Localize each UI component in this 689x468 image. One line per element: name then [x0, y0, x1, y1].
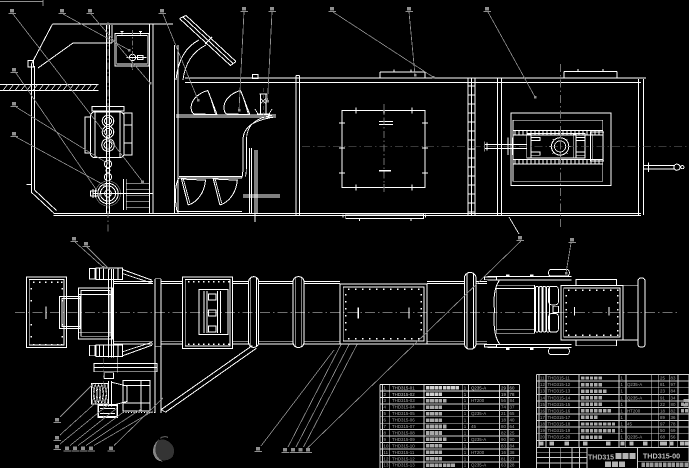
svg-text:THD315-14: THD315-14 [548, 395, 571, 400]
svg-text:78: 78 [510, 392, 515, 397]
svg-text:THD315-12: THD315-12 [392, 456, 415, 461]
svg-text:11: 11 [540, 376, 545, 381]
svg-text:82: 82 [671, 408, 676, 413]
svg-text:THD315-01: THD315-01 [392, 385, 415, 390]
svg-text:14: 14 [540, 395, 545, 400]
svg-text:84: 84 [671, 389, 676, 394]
svg-text:Q235-A: Q235-A [471, 411, 486, 416]
svg-text:28: 28 [510, 463, 515, 468]
svg-text:23: 23 [660, 389, 665, 394]
svg-text:THD315-19: THD315-19 [548, 428, 571, 433]
svg-text:THD315-12: THD315-12 [548, 382, 571, 387]
svg-text:69: 69 [671, 428, 676, 433]
svg-text:18: 18 [660, 408, 665, 413]
svg-text:34: 34 [671, 395, 676, 400]
svg-text:THD315-11: THD315-11 [392, 450, 415, 455]
svg-text:Q235-A: Q235-A [471, 463, 486, 468]
svg-text:18: 18 [501, 418, 506, 423]
svg-text:THD315-00: THD315-00 [643, 452, 680, 461]
svg-text:THD315-17: THD315-17 [548, 415, 571, 420]
svg-text:25: 25 [510, 430, 515, 435]
svg-text:81: 81 [501, 456, 506, 461]
svg-text:45: 45 [627, 422, 632, 427]
svg-text:19: 19 [540, 428, 545, 433]
svg-text:THD315-10: THD315-10 [392, 443, 415, 448]
svg-text:90: 90 [510, 437, 515, 442]
svg-text:81: 81 [660, 382, 665, 387]
svg-text:Q235-A: Q235-A [627, 435, 642, 440]
svg-text:Q235-A: Q235-A [627, 382, 642, 387]
svg-text:90: 90 [501, 437, 506, 442]
svg-text:40: 40 [510, 418, 515, 423]
svg-text:12: 12 [540, 382, 545, 387]
svg-text:21: 21 [501, 411, 506, 416]
svg-text:22: 22 [660, 402, 665, 407]
svg-text:80: 80 [671, 402, 676, 407]
svg-text:97: 97 [660, 422, 665, 427]
svg-text:THD315-11: THD315-11 [548, 376, 571, 381]
svg-text:60: 60 [510, 385, 515, 390]
svg-text:13: 13 [540, 389, 545, 394]
svg-text:37: 37 [510, 405, 515, 410]
svg-text:36: 36 [671, 415, 676, 420]
svg-text:11: 11 [384, 450, 389, 455]
svg-text:10: 10 [384, 443, 389, 448]
svg-text:19: 19 [501, 392, 506, 397]
svg-text:25: 25 [660, 376, 665, 381]
svg-text:Q235-A: Q235-A [471, 385, 486, 390]
svg-text:THD315-13: THD315-13 [548, 389, 571, 394]
svg-text:91: 91 [660, 395, 665, 400]
svg-text:29: 29 [501, 385, 506, 390]
svg-text:12: 12 [384, 456, 389, 461]
svg-text:HT200: HT200 [627, 408, 641, 413]
svg-text:16: 16 [501, 450, 506, 455]
svg-text:65: 65 [510, 411, 515, 416]
svg-text:56: 56 [501, 398, 506, 403]
svg-text:THD315-08: THD315-08 [392, 430, 415, 435]
svg-text:83: 83 [671, 376, 676, 381]
svg-text:Q235-A: Q235-A [471, 437, 486, 442]
svg-text:56: 56 [671, 435, 676, 440]
svg-text:THD315-03: THD315-03 [392, 398, 415, 403]
svg-text:18: 18 [540, 422, 545, 427]
svg-text:45: 45 [471, 424, 476, 429]
svg-text:84: 84 [510, 443, 515, 448]
svg-text:THD315-09: THD315-09 [392, 437, 415, 442]
svg-text:38: 38 [510, 450, 515, 455]
svg-text:80: 80 [501, 424, 506, 429]
svg-text:THD315-15: THD315-15 [548, 402, 571, 407]
svg-text:THD315: THD315 [588, 455, 614, 462]
svg-text:THD315-18: THD315-18 [548, 422, 571, 427]
svg-text:THD315-16: THD315-16 [548, 408, 571, 413]
svg-text:THD315-02: THD315-02 [392, 392, 415, 397]
svg-text:84: 84 [510, 398, 515, 403]
svg-text:27: 27 [510, 456, 515, 461]
svg-text:78: 78 [671, 422, 676, 427]
svg-text:THD315-06: THD315-06 [392, 418, 415, 423]
svg-text:50: 50 [660, 428, 665, 433]
svg-text:HT200: HT200 [471, 398, 485, 403]
svg-text:THD315-13: THD315-13 [392, 463, 415, 468]
svg-text:13: 13 [384, 463, 389, 468]
svg-text:Q235-A: Q235-A [627, 395, 642, 400]
svg-text:83: 83 [501, 443, 506, 448]
svg-text:89: 89 [660, 415, 665, 420]
svg-text:17: 17 [540, 415, 545, 420]
svg-text:HT200: HT200 [471, 450, 485, 455]
svg-text:68: 68 [660, 435, 665, 440]
svg-text:97: 97 [671, 382, 676, 387]
svg-text:82: 82 [501, 430, 506, 435]
svg-text:20: 20 [540, 435, 545, 440]
svg-text:64: 64 [510, 424, 515, 429]
svg-text:THD315-05: THD315-05 [392, 411, 415, 416]
svg-text:THD315-07: THD315-07 [392, 424, 415, 429]
svg-text:THD315-20: THD315-20 [548, 435, 571, 440]
svg-text:THD315-04: THD315-04 [392, 405, 415, 410]
svg-text:74: 74 [501, 405, 506, 410]
svg-text:15: 15 [540, 402, 545, 407]
svg-text:63: 63 [501, 463, 506, 468]
svg-text:16: 16 [540, 408, 545, 413]
